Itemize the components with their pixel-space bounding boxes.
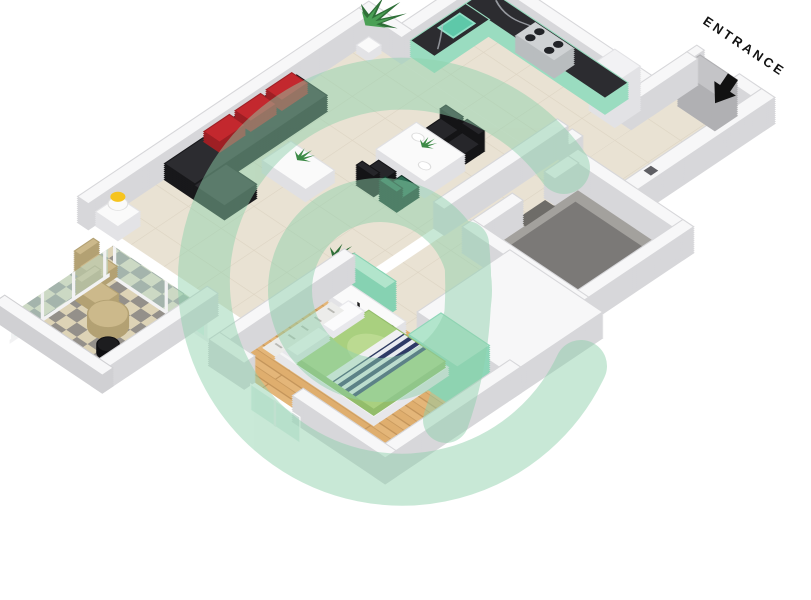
- watermark-tail: [446, 244, 468, 420]
- railing-post: [72, 271, 75, 301]
- railing-post: [103, 250, 106, 280]
- isometric-floor-plan: @bayut E: [0, 0, 811, 600]
- railing-post: [41, 292, 44, 322]
- floor-plan-canvas: @bayut E: [0, 0, 811, 600]
- partition-post: [165, 280, 168, 314]
